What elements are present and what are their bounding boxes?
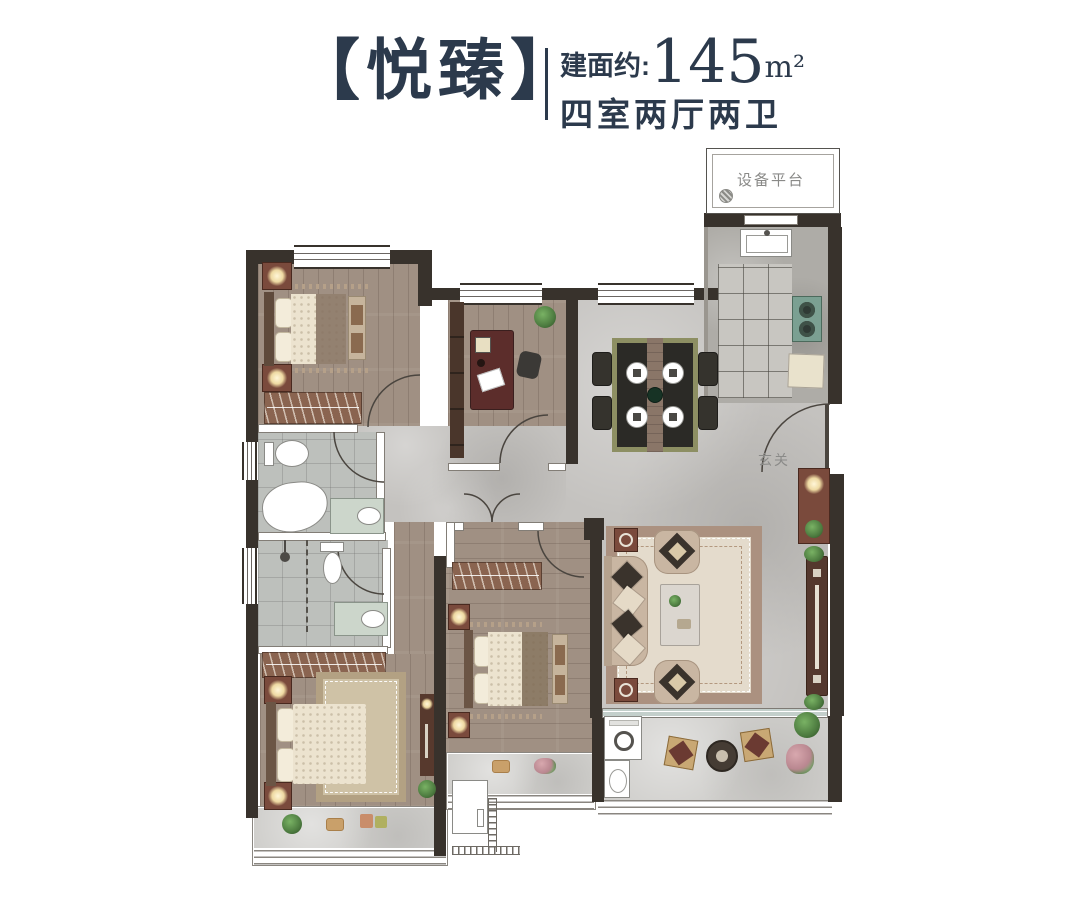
- living-coffee-table: [660, 584, 700, 646]
- bedroom1-door-arc: [368, 375, 421, 428]
- balcony-flowers-icon: [786, 744, 814, 774]
- bedroom1-headboard: [264, 292, 274, 366]
- bedroom2-nightstand-bottom: [448, 712, 470, 738]
- entry-door-leaf: [825, 404, 829, 472]
- study-bottom-wall-b: [548, 463, 566, 471]
- bedroom2-rug-fringe-top: [470, 622, 542, 627]
- master-bay-plant-icon: [282, 814, 302, 834]
- bathroom1-vanity: [330, 498, 384, 534]
- bedroom1-rug-fringe-top: [288, 284, 372, 289]
- left-wall-lower: [246, 604, 258, 818]
- bathroom1-sink-basin: [357, 507, 381, 525]
- balcony-chair-1: [664, 736, 699, 771]
- bedroom2-nightstand-top: [448, 604, 470, 630]
- study-door-arc: [500, 415, 549, 464]
- bedroom2-lamp-bottom-glow: [450, 716, 468, 734]
- master-nightstand-bottom: [264, 782, 292, 810]
- balcony-chair-2: [740, 728, 774, 762]
- bedroom2-door-arc: [538, 531, 585, 578]
- stove-burner-1: [799, 302, 815, 318]
- living-armchair-bottom: [654, 660, 700, 704]
- master-bay-tray: [326, 818, 344, 831]
- bedroom1-rug-fringe-bottom: [288, 368, 372, 373]
- master-tv-console: [420, 694, 434, 776]
- wall-top-3: [430, 288, 460, 300]
- bedroom2-double-door-right-arc: [492, 494, 521, 523]
- bedroom1-bench-cushion-2: [351, 333, 363, 353]
- area-info: 建面约: 145 m²: [560, 32, 805, 90]
- left-wall-upper: [246, 250, 258, 442]
- console-plant-bottom-icon: [804, 694, 824, 710]
- coffee-table-plant-icon: [669, 595, 681, 607]
- shower-partition: [306, 540, 308, 632]
- bathroom1-toilet-tank: [264, 442, 274, 466]
- bedroom2-bay-tray: [492, 760, 510, 773]
- living-sofa: [604, 556, 648, 666]
- dining-plate-1: [626, 362, 648, 384]
- bedroom1-window: [294, 245, 390, 269]
- ac-platform: [452, 780, 488, 834]
- dining-window: [598, 283, 694, 305]
- bedroom2-rug-fringe-bottom: [470, 714, 542, 719]
- bathroom1-toilet-bowl: [275, 440, 309, 467]
- bedroom2-bed: [464, 630, 550, 708]
- stove-burner-2: [799, 321, 815, 337]
- study-desk: [470, 330, 514, 410]
- master-bay-box-1: [360, 814, 373, 828]
- console-knob-2: [813, 675, 821, 683]
- washer-panel: [609, 720, 639, 726]
- rooms-summary: 四室两厅两卫: [560, 88, 782, 136]
- dining-chair-left-2: [592, 396, 612, 430]
- bedroom1-bed: [264, 292, 346, 366]
- bathroom1-window: [242, 442, 257, 480]
- balcony-right-wall: [828, 716, 842, 802]
- dining-plate-3: [626, 406, 648, 428]
- pipe-duct-horizontal: [452, 846, 520, 855]
- right-wall-lower: [830, 474, 844, 716]
- bedroom1-nightstand-bottom: [262, 364, 292, 392]
- bedroom1-bench: [348, 296, 366, 360]
- entry-cabinet-plant-icon: [805, 520, 823, 538]
- master-console-handle: [425, 724, 428, 758]
- kitchen-sink-basin: [746, 235, 788, 253]
- living-side-lamp-top: [619, 533, 633, 547]
- dining-plate-4: [662, 406, 684, 428]
- area-unit: m²: [765, 50, 805, 90]
- balcony-table: [706, 740, 738, 772]
- bathroom2-door-arc: [338, 548, 385, 595]
- title-bracket-left: 【: [294, 31, 366, 109]
- desk-papers: [477, 368, 505, 393]
- shower-arm: [284, 540, 286, 552]
- study-bottom-wall-a: [448, 463, 500, 471]
- study-plant-icon: [534, 306, 556, 328]
- master-bay-glass-lines: [254, 850, 446, 865]
- bedroom1-blanket: [316, 294, 346, 364]
- floorplan-page: 【悦臻】 建面约: 145 m² 四室两厅两卫: [0, 0, 1080, 921]
- bathroom2-vanity: [334, 602, 388, 636]
- page-title: 【悦臻】: [294, 34, 582, 107]
- kitchen-grid-area: [718, 264, 792, 398]
- master-bay-window: [252, 806, 448, 866]
- master-console-lamp-glow: [421, 698, 433, 710]
- header-divider: [545, 48, 548, 120]
- hallway-console: [806, 556, 828, 696]
- master-bed: [266, 702, 368, 786]
- bedroom1-nightstand-top: [262, 262, 292, 290]
- living-side-table-bottom: [614, 678, 638, 702]
- dining-chair-right-1: [698, 352, 718, 386]
- study-bookshelf: [450, 302, 464, 458]
- master-plant-icon: [418, 780, 436, 798]
- balcony-glass-lines: [598, 800, 832, 816]
- dining-centerpiece: [647, 387, 663, 403]
- desk-cup: [477, 359, 485, 367]
- study-right-wall: [566, 296, 578, 464]
- area-value: 145: [650, 35, 765, 90]
- dining-chair-right-2: [698, 396, 718, 430]
- bedroom1-lamp-top-glow: [267, 266, 287, 286]
- bedroom2-nook-wall-right: [518, 522, 544, 531]
- equipment-platform: 设备平台: [706, 148, 840, 214]
- bedroom2-bench-cushion-2: [555, 675, 565, 695]
- living-armchair-top: [654, 530, 700, 574]
- bedroom2-blanket: [522, 632, 548, 706]
- right-wall-upper: [828, 227, 842, 404]
- dining-chair-left-1: [592, 352, 612, 386]
- ac-platform-handle: [477, 809, 484, 827]
- master-lamp-bottom-glow: [268, 786, 288, 806]
- kitchen-stove: [792, 296, 822, 342]
- bedroom2-bay-flowers-icon: [534, 758, 556, 774]
- bedroom2-corner-wall: [584, 518, 604, 540]
- bedroom2-headboard: [464, 630, 473, 708]
- drain-icon: [719, 189, 733, 203]
- balcony-chair-1-cushion: [668, 740, 693, 765]
- master-lamp-top-glow: [268, 680, 288, 700]
- left-wall-mid: [246, 480, 258, 548]
- title-text: 悦臻: [366, 31, 510, 109]
- bedroom2-lamp-top-glow: [450, 608, 468, 626]
- bedroom1-lamp-bottom-glow: [267, 368, 287, 388]
- console-handle: [815, 585, 819, 669]
- dining-plate-2: [662, 362, 684, 384]
- kitchen-counter: [787, 353, 824, 388]
- balcony-chair-2-cushion: [744, 732, 769, 757]
- area-prefix: 建面约:: [560, 44, 650, 90]
- sofa-back: [604, 556, 612, 666]
- bedroom1-wardrobe: [264, 392, 362, 424]
- kitchen-top-window: [744, 215, 798, 225]
- desk-lamp: [475, 337, 491, 353]
- equipment-platform-label: 设备平台: [737, 169, 805, 190]
- master-nightstand-top: [264, 676, 292, 704]
- master-bay-box-2: [375, 816, 387, 828]
- balcony-table-plate: [716, 750, 728, 762]
- bedroom2-bench: [552, 634, 568, 704]
- balcony-sink-basin: [609, 769, 627, 793]
- entry-lamp-glow: [804, 474, 824, 494]
- bedroom2-bench-cushion-1: [555, 645, 565, 665]
- bathroom1-door-arc: [334, 432, 385, 483]
- living-left-wall: [590, 518, 602, 718]
- washing-machine: [604, 716, 642, 760]
- shower-head-icon: [280, 552, 290, 562]
- sofa-cushion-4: [613, 633, 644, 664]
- coffee-table-tray: [677, 619, 691, 629]
- living-side-lamp-bottom: [619, 683, 633, 697]
- master-bedroom2-divider-wall: [434, 556, 446, 856]
- bathroom2-sink-basin: [361, 610, 385, 628]
- console-plant-top-icon: [804, 546, 824, 562]
- kitchen-sink: [740, 229, 792, 257]
- balcony-sink: [604, 760, 630, 798]
- master-hall-floor: [394, 522, 434, 654]
- bedroom2-double-door-left-arc: [464, 494, 493, 523]
- study-window: [460, 283, 542, 305]
- pipe-duct-vertical: [488, 798, 497, 852]
- living-side-table-top: [614, 528, 638, 552]
- master-headboard: [266, 702, 276, 786]
- bedroom1-bench-cushion-1: [351, 305, 363, 325]
- washer-drum-icon: [614, 731, 634, 751]
- entry-shoe-cabinet: [798, 468, 830, 544]
- master-duvet: [293, 704, 366, 784]
- console-knob-1: [813, 569, 821, 577]
- bathroom2-toilet-tank: [320, 542, 344, 552]
- balcony-left-wall: [592, 716, 604, 802]
- bedroom2-wardrobe: [452, 562, 542, 590]
- entry-label: 玄关: [758, 450, 790, 470]
- bathroom2-window: [242, 548, 257, 604]
- kitchen-faucet: [764, 230, 770, 236]
- dining-table: [612, 338, 698, 452]
- bathroom2-toilet-bowl: [323, 552, 342, 584]
- balcony-plant-icon: [794, 712, 820, 738]
